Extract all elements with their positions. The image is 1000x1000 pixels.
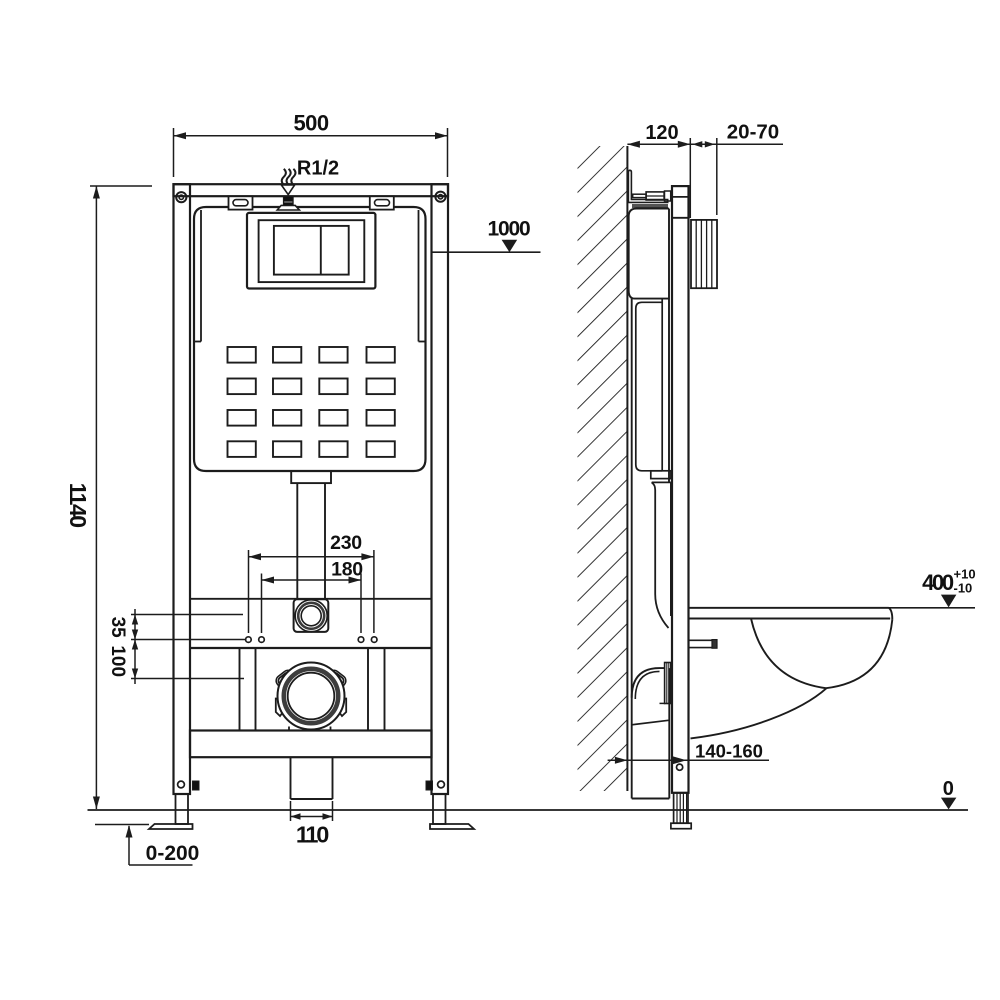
svg-text:-10: -10 bbox=[954, 581, 973, 596]
svg-text:0: 0 bbox=[943, 778, 954, 800]
svg-text:+10: +10 bbox=[954, 567, 976, 582]
svg-text:400: 400 bbox=[922, 570, 954, 595]
svg-text:1140: 1140 bbox=[65, 483, 91, 528]
svg-text:0-200: 0-200 bbox=[146, 842, 200, 865]
svg-text:100: 100 bbox=[107, 645, 128, 677]
svg-text:500: 500 bbox=[294, 111, 329, 136]
svg-text:20-70: 20-70 bbox=[727, 121, 779, 144]
svg-text:140-160: 140-160 bbox=[695, 741, 763, 762]
svg-text:230: 230 bbox=[330, 532, 362, 554]
svg-text:R1/2: R1/2 bbox=[297, 157, 339, 179]
svg-text:180: 180 bbox=[331, 559, 363, 581]
svg-text:110: 110 bbox=[296, 821, 329, 847]
svg-text:1000: 1000 bbox=[488, 218, 530, 241]
svg-text:35: 35 bbox=[107, 617, 128, 639]
svg-text:120: 120 bbox=[645, 122, 678, 144]
